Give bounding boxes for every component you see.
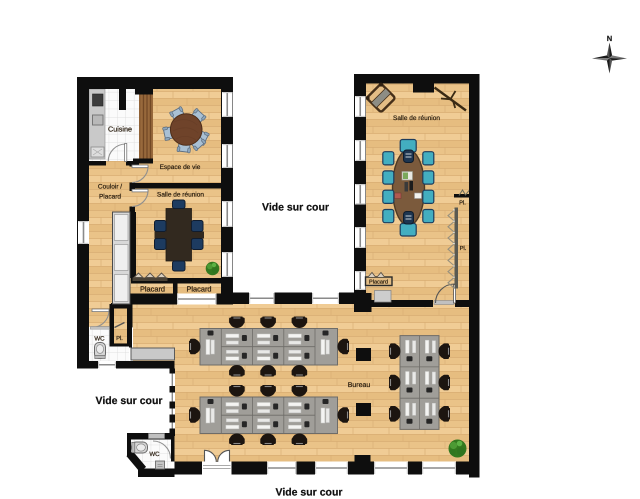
svg-text:WC: WC: [94, 336, 105, 343]
svg-text:Salle de réunion: Salle de réunion: [393, 115, 440, 122]
svg-text:WC: WC: [149, 451, 160, 458]
svg-text:Placard: Placard: [99, 194, 121, 201]
svg-text:Bureau: Bureau: [348, 382, 371, 389]
svg-text:Placard: Placard: [369, 279, 388, 286]
svg-text:N: N: [607, 34, 612, 43]
svg-text:Pl.: Pl.: [460, 245, 467, 252]
svg-text:Vide sur cour: Vide sur cour: [262, 202, 329, 214]
svg-text:Cuisine: Cuisine: [108, 125, 132, 134]
svg-text:Pl.: Pl.: [459, 200, 466, 207]
svg-text:Pl.: Pl.: [116, 335, 123, 342]
svg-text:Espace de vie: Espace de vie: [160, 164, 201, 171]
svg-text:Placard: Placard: [140, 285, 165, 294]
svg-text:Vide sur cour: Vide sur cour: [276, 487, 343, 499]
svg-text:Vide sur cour: Vide sur cour: [96, 395, 163, 407]
svg-text:Salle de réunion: Salle de réunion: [157, 192, 204, 199]
svg-text:Couloir /: Couloir /: [98, 184, 122, 191]
svg-text:Placard: Placard: [186, 285, 211, 294]
